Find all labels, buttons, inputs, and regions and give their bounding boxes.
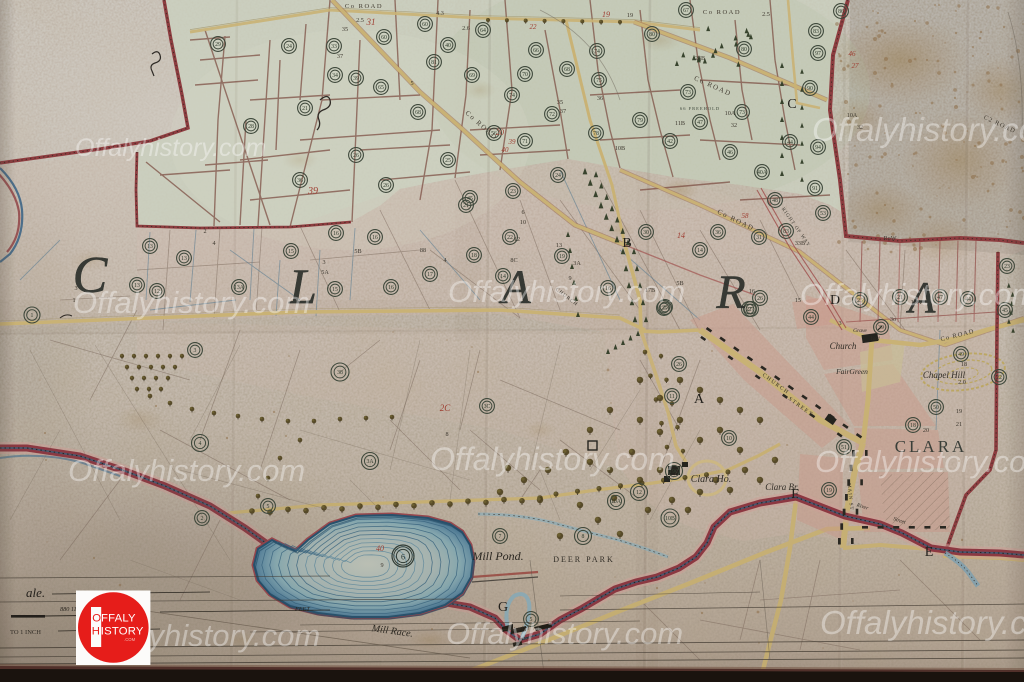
svg-text:Offalyhistory.com: Offalyhistory.com xyxy=(73,285,310,320)
svg-text:.COM: .COM xyxy=(124,637,136,642)
svg-text:Offalyhistory.com: Offalyhistory.com xyxy=(815,444,1024,479)
svg-text:ISTORY: ISTORY xyxy=(101,626,144,638)
svg-text:Offalyhistory.com: Offalyhistory.com xyxy=(800,277,1024,312)
svg-text:Offalyhistory.com: Offalyhistory.com xyxy=(820,604,1024,641)
svg-text:Offalyhistory.com: Offalyhistory.com xyxy=(75,134,266,162)
svg-text:O: O xyxy=(92,612,101,624)
svg-text:Offalyhistory.com: Offalyhistory.com xyxy=(448,274,685,309)
svg-text:H: H xyxy=(92,626,100,638)
svg-text:Offalyhistory.com: Offalyhistory.com xyxy=(446,616,683,651)
svg-text:FFALY: FFALY xyxy=(101,612,136,624)
svg-text:Offalyhistory.com: Offalyhistory.com xyxy=(68,453,305,488)
svg-text:Offalyhistory.com: Offalyhistory.com xyxy=(812,111,1024,148)
svg-text:Offalyhistory.com: Offalyhistory.com xyxy=(430,441,675,477)
